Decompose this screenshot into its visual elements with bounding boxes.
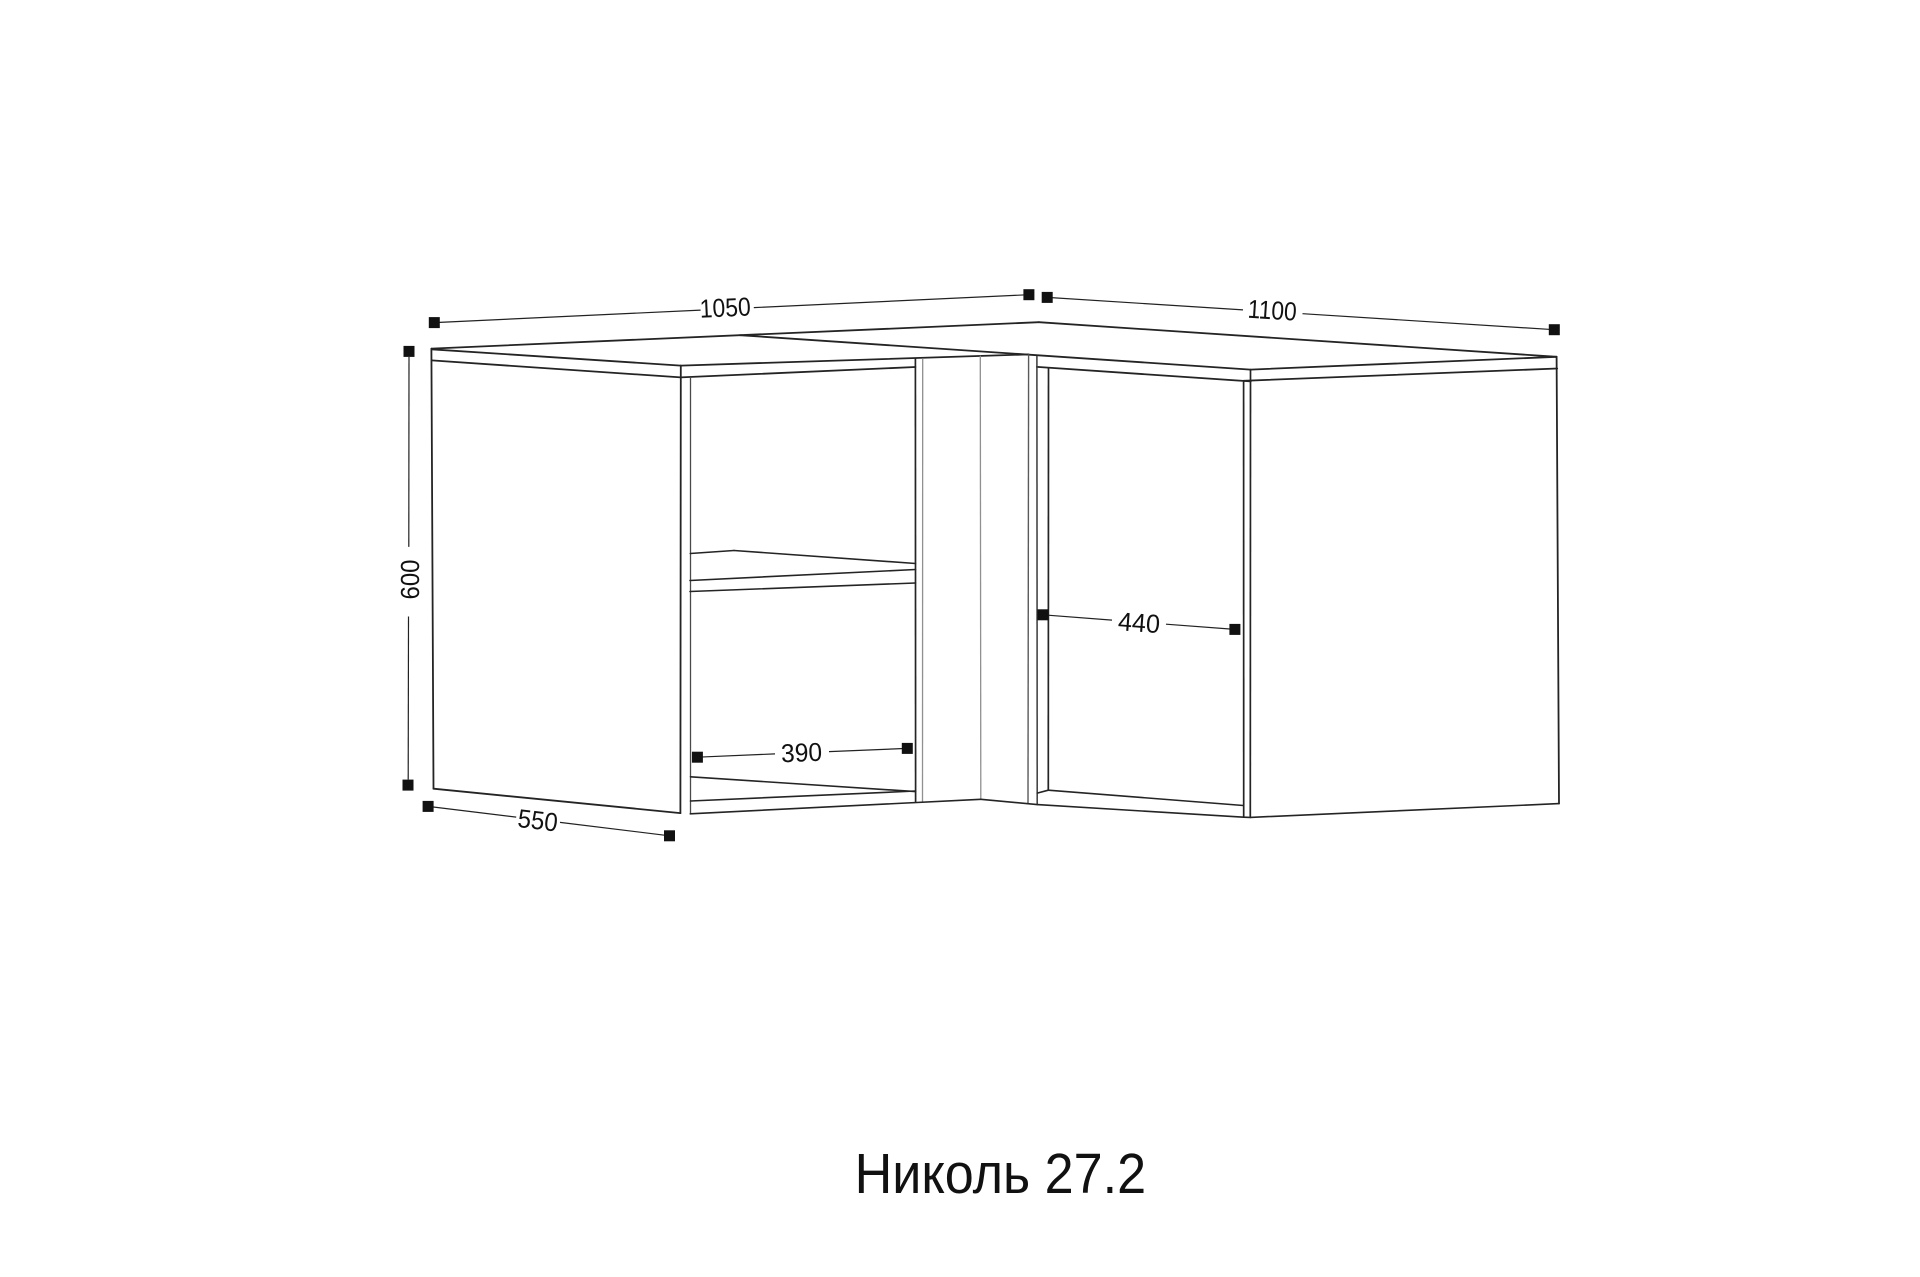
svg-text:550: 550	[516, 803, 559, 838]
svg-text:Николь 27.2: Николь 27.2	[855, 1142, 1147, 1206]
svg-text:1100: 1100	[1247, 294, 1298, 327]
svg-text:1050: 1050	[699, 291, 751, 323]
svg-text:440: 440	[1117, 606, 1161, 639]
svg-text:390: 390	[780, 737, 822, 769]
svg-text:600: 600	[395, 560, 425, 600]
